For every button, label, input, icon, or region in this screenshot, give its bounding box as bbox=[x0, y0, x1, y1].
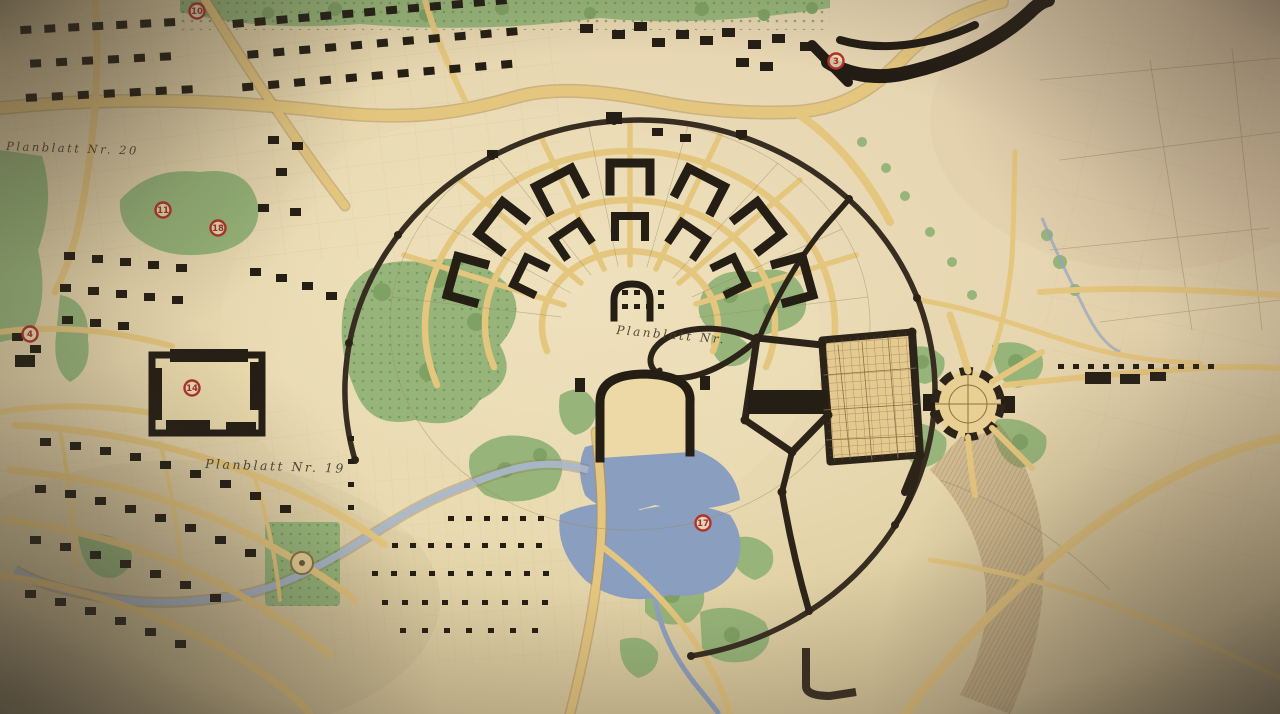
map-marker-4: 4 bbox=[23, 327, 38, 342]
video-frame-historic-town-plan: 10 11 18 4 14 3 17 Planblatt Nr. 20 Pla bbox=[0, 0, 1280, 714]
marker-number: 18 bbox=[212, 224, 224, 234]
marker-number: 14 bbox=[186, 384, 198, 394]
marker-number: 4 bbox=[27, 330, 33, 340]
marker-number: 10 bbox=[191, 7, 203, 17]
marker-number: 17 bbox=[697, 519, 709, 529]
large-horseshoe-building bbox=[600, 374, 690, 458]
map-marker-5: 14 bbox=[185, 381, 200, 396]
large-building-bar bbox=[748, 390, 828, 414]
map-marker-2: 11 bbox=[156, 203, 171, 218]
historic-map: 10 11 18 4 14 3 17 Planblatt Nr. 20 Pla bbox=[0, 0, 1280, 714]
map-marker-7: 17 bbox=[696, 516, 711, 531]
marker-number: 3 bbox=[833, 57, 839, 67]
marker-number: 11 bbox=[157, 206, 169, 216]
map-marker-3: 18 bbox=[211, 221, 226, 236]
map-marker-1: 10 bbox=[190, 4, 205, 19]
courtyard-complex bbox=[149, 349, 263, 433]
map-marker-6: 3 bbox=[829, 54, 844, 69]
park-roundabout bbox=[291, 552, 313, 574]
